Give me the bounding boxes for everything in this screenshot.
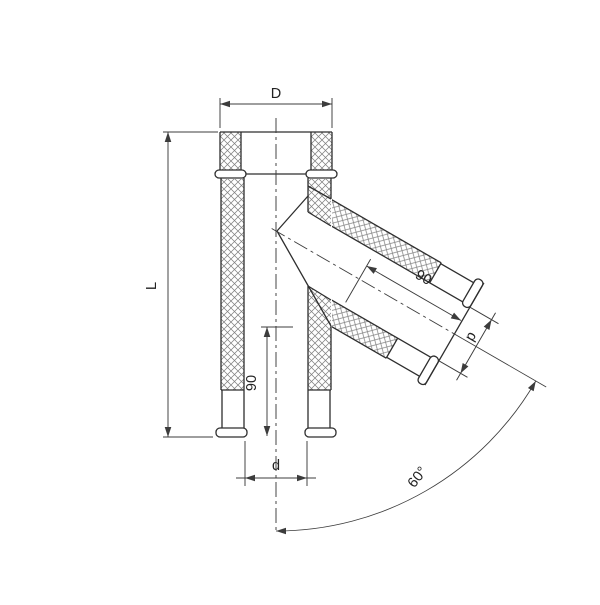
pipe-tee-60deg-drawing: D L 90 d 90 d xyxy=(0,0,600,600)
label-outer-diameter: D xyxy=(271,86,281,102)
bottom-bead-left xyxy=(216,428,247,437)
branch-axis-extension xyxy=(462,339,546,388)
socket-insulation-left xyxy=(220,132,241,174)
bottom-bead-right xyxy=(305,428,336,437)
socket-insulation-right xyxy=(311,132,332,174)
label-length: L xyxy=(144,282,160,290)
label-stub-length-vertical: 90 xyxy=(244,375,260,391)
joint-bead-right xyxy=(306,170,337,178)
joint-bead-left xyxy=(215,170,246,178)
label-inner-diameter-branch: d xyxy=(462,329,480,344)
wall-insulation-left xyxy=(221,178,244,390)
label-branch-angle: 60° xyxy=(405,464,431,491)
wall-insulation-right-lower xyxy=(308,286,331,390)
technical-drawing-canvas: D L 90 d 90 d xyxy=(0,0,600,600)
dimension-L: L xyxy=(144,132,218,437)
